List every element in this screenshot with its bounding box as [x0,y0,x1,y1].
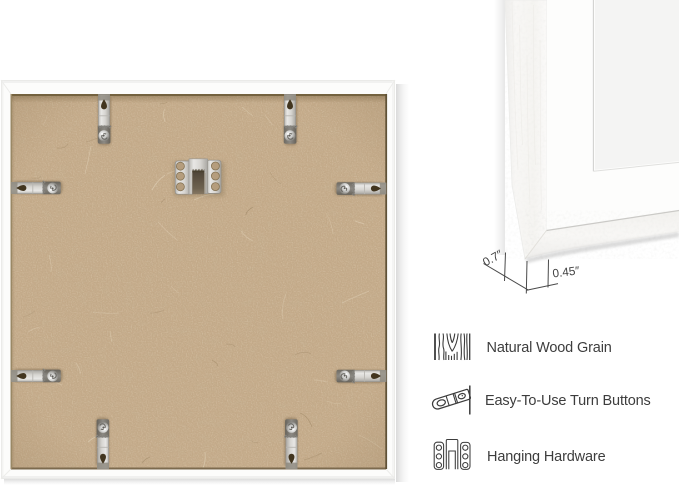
svg-text:Natural Wood Grain: Natural Wood Grain [487,340,612,356]
svg-text:Easy-To-Use Turn Buttons: Easy-To-Use Turn Buttons [485,393,651,409]
svg-text:0.45″: 0.45″ [552,263,581,280]
svg-text:Hanging Hardware: Hanging Hardware [487,449,606,465]
